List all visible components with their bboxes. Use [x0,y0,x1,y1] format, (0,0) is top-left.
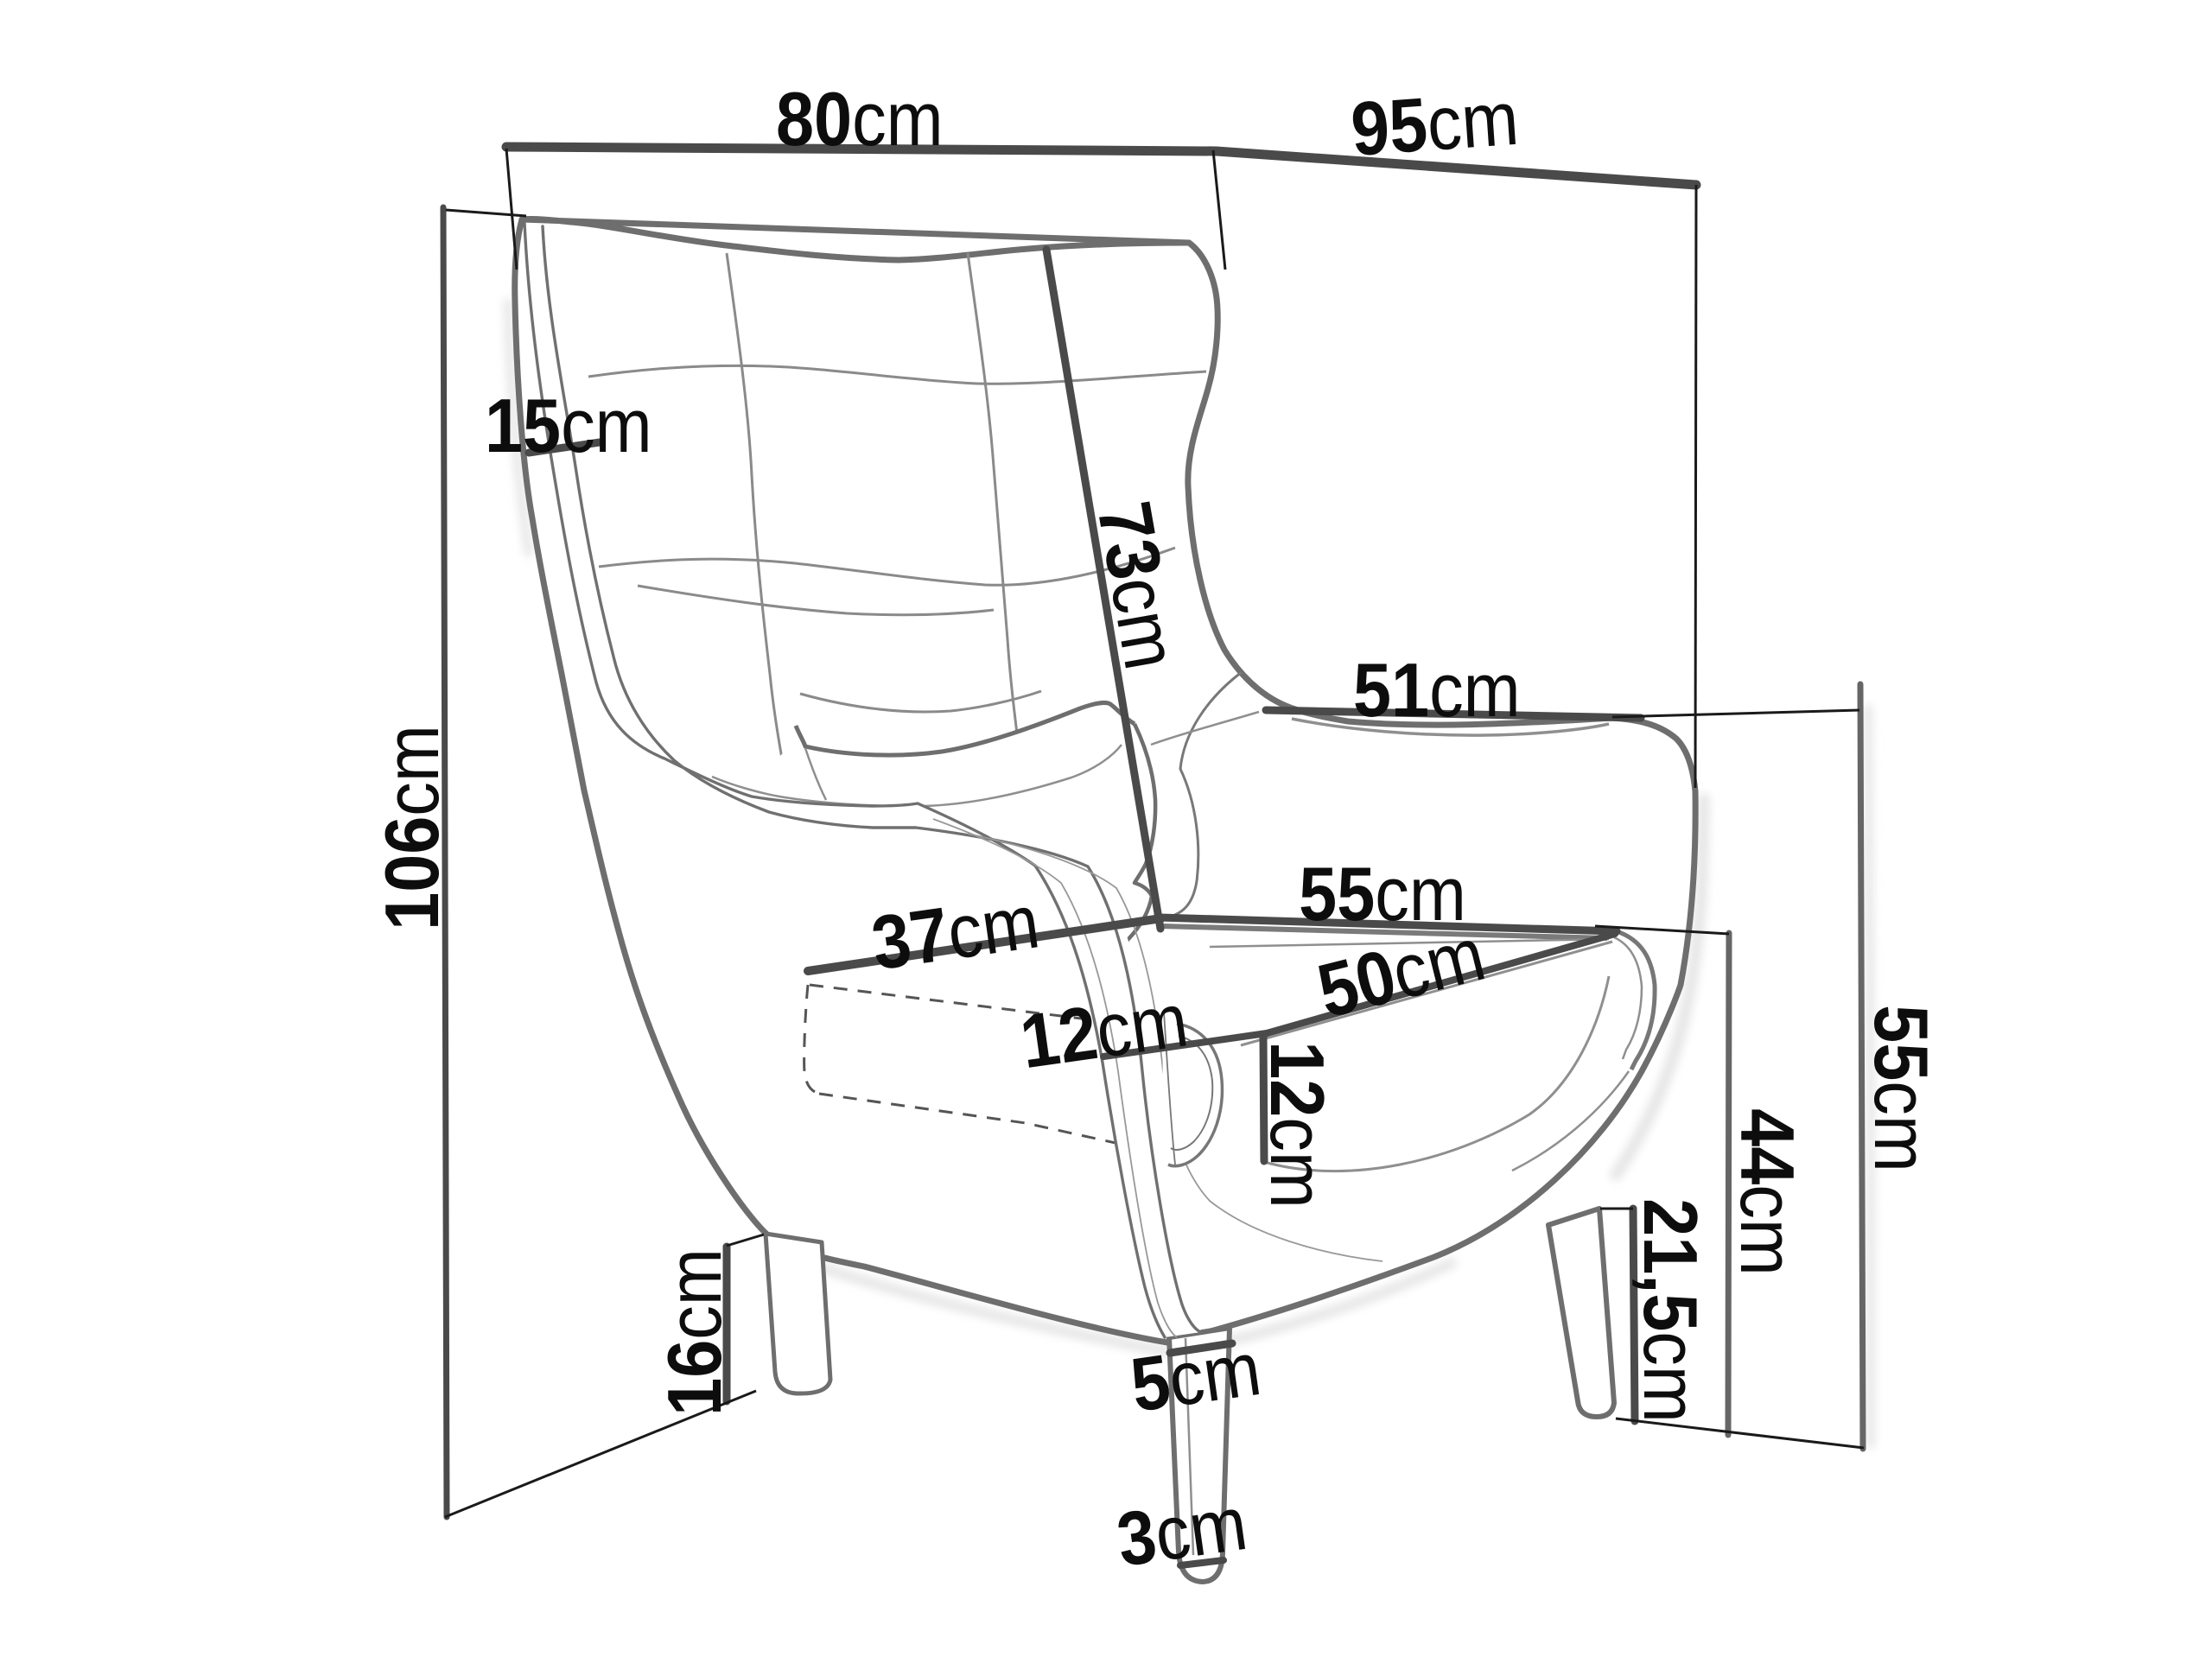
svg-text:95cm: 95cm [1348,75,1521,172]
svg-text:80cm: 80cm [776,76,944,162]
svg-text:106cm: 106cm [369,725,454,930]
svg-text:55cm: 55cm [1859,1005,1944,1172]
svg-text:3cm: 3cm [1112,1480,1252,1583]
svg-text:44cm: 44cm [1725,1108,1810,1276]
svg-text:16cm: 16cm [652,1248,737,1416]
svg-text:21,5cm: 21,5cm [1628,1198,1713,1423]
svg-text:15cm: 15cm [485,383,652,468]
svg-text:51cm: 51cm [1353,647,1521,733]
svg-text:5cm: 5cm [1126,1325,1266,1428]
svg-text:12cm: 12cm [1255,1041,1340,1209]
